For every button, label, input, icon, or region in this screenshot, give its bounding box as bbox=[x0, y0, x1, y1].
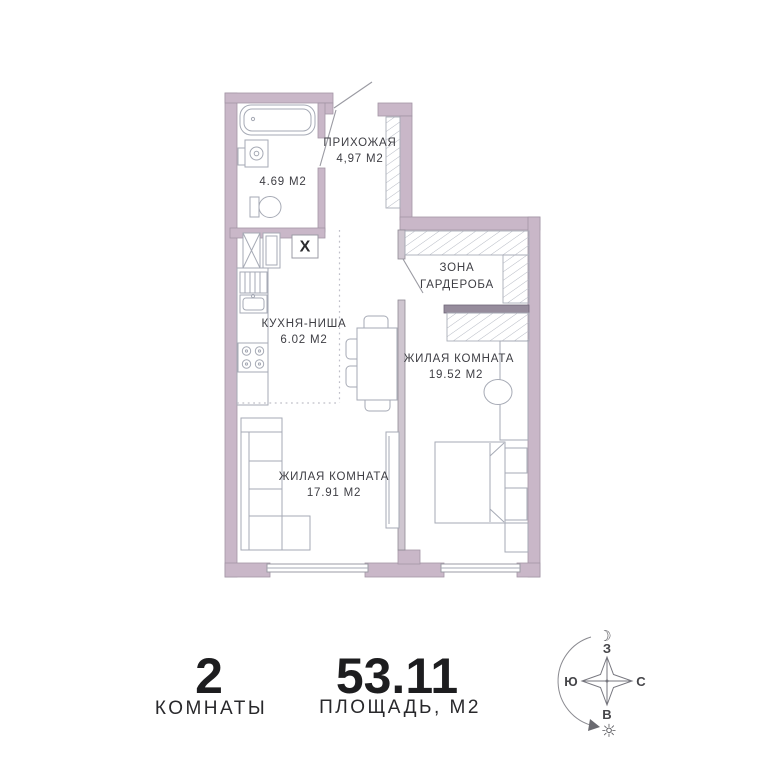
desk-chair bbox=[484, 380, 512, 405]
living-room-left-label: ЖИЛАЯ КОМНАТА bbox=[279, 471, 390, 483]
summary: 2 КОМНАТЫ 53.11 ПЛОЩАДЬ, М2 bbox=[155, 648, 481, 719]
wall-bathroom-right-bottom bbox=[318, 168, 325, 232]
bathroom-area: 4.69 М2 bbox=[259, 176, 306, 188]
total-area-label: ПЛОЩАДЬ, М2 bbox=[319, 697, 481, 718]
hallway-wardrobe bbox=[386, 117, 400, 208]
wall-room-right-top bbox=[400, 217, 540, 230]
living-room-left-area: 17.91 М2 bbox=[307, 487, 361, 499]
wall-wardrobe-partition bbox=[444, 305, 529, 313]
page: X bbox=[0, 0, 768, 768]
sun-icon: ☼ bbox=[601, 721, 617, 742]
total-area-value: 53.11 bbox=[336, 648, 458, 704]
nightstand-bottom bbox=[505, 488, 527, 520]
wall-right bbox=[528, 217, 540, 577]
kitchen-tall-unit-2 bbox=[263, 233, 280, 268]
wall-entrance-cap bbox=[378, 103, 412, 116]
window-left-room bbox=[267, 564, 368, 572]
dining-table bbox=[357, 328, 397, 400]
toilet bbox=[250, 197, 281, 218]
kitchen-tall-unit-1 bbox=[243, 233, 260, 268]
bathroom-shelf bbox=[238, 148, 245, 165]
wall-partition-top bbox=[398, 230, 405, 259]
moon-icon: ☽ bbox=[598, 627, 611, 645]
floor-plan-svg: X bbox=[0, 0, 768, 768]
compass-south-label: Ю bbox=[564, 674, 577, 689]
living-room-right-area: 19.52 М2 bbox=[429, 369, 483, 381]
hallway-area: 4,97 М2 bbox=[336, 153, 383, 165]
bathtub bbox=[240, 105, 315, 135]
stove bbox=[238, 343, 268, 372]
wall-top bbox=[225, 93, 333, 103]
living-room-right-label: ЖИЛАЯ КОМНАТА bbox=[404, 353, 515, 365]
wall-hallway-right bbox=[400, 116, 412, 220]
entrance-door-leaf bbox=[334, 82, 372, 108]
kitchen-area: 6.02 М2 bbox=[280, 334, 327, 346]
compass-east-label: В bbox=[602, 707, 611, 722]
nightstand-top bbox=[505, 448, 527, 473]
wall-partition-jog bbox=[398, 550, 420, 564]
compass-rose bbox=[582, 657, 632, 705]
dish-rack bbox=[240, 272, 267, 293]
compass: З Ю С В ☽ ☼ bbox=[558, 627, 646, 742]
wardrobe-zone-label-line1: ЗОНА bbox=[440, 262, 475, 274]
window-right-room bbox=[441, 564, 520, 572]
wardrobe-zone-label-line2: ГАРДЕРОБА bbox=[420, 279, 494, 291]
wardrobe-zone-right bbox=[503, 255, 529, 303]
kitchen-label: КУХНЯ-НИША bbox=[261, 318, 346, 330]
washing-machine bbox=[245, 140, 268, 167]
left-room-furniture bbox=[241, 418, 399, 550]
bedroom-cabinet bbox=[505, 523, 528, 552]
sun-path-arrowhead bbox=[588, 719, 600, 731]
shaft-label: X bbox=[300, 239, 311, 256]
sofa bbox=[241, 418, 310, 550]
bathroom-fixtures bbox=[238, 105, 315, 218]
bed bbox=[435, 442, 505, 523]
compass-north-label: С bbox=[636, 674, 646, 689]
wall-bathroom-right-top bbox=[318, 103, 325, 138]
ventilation-shaft: X bbox=[292, 235, 318, 258]
wardrobe-zone-lower bbox=[447, 313, 529, 341]
wardrobe-zone-top bbox=[405, 231, 529, 255]
kitchen-sink bbox=[240, 294, 267, 313]
hallway-label: ПРИХОЖАЯ bbox=[323, 137, 396, 149]
wall-bottom-a bbox=[225, 563, 270, 577]
rooms-count-label: КОМНАТЫ bbox=[155, 698, 267, 719]
dining-set bbox=[346, 316, 397, 411]
wall-bottom-b bbox=[365, 563, 444, 577]
rooms-count-value: 2 bbox=[195, 648, 223, 704]
wall-left bbox=[225, 93, 237, 577]
